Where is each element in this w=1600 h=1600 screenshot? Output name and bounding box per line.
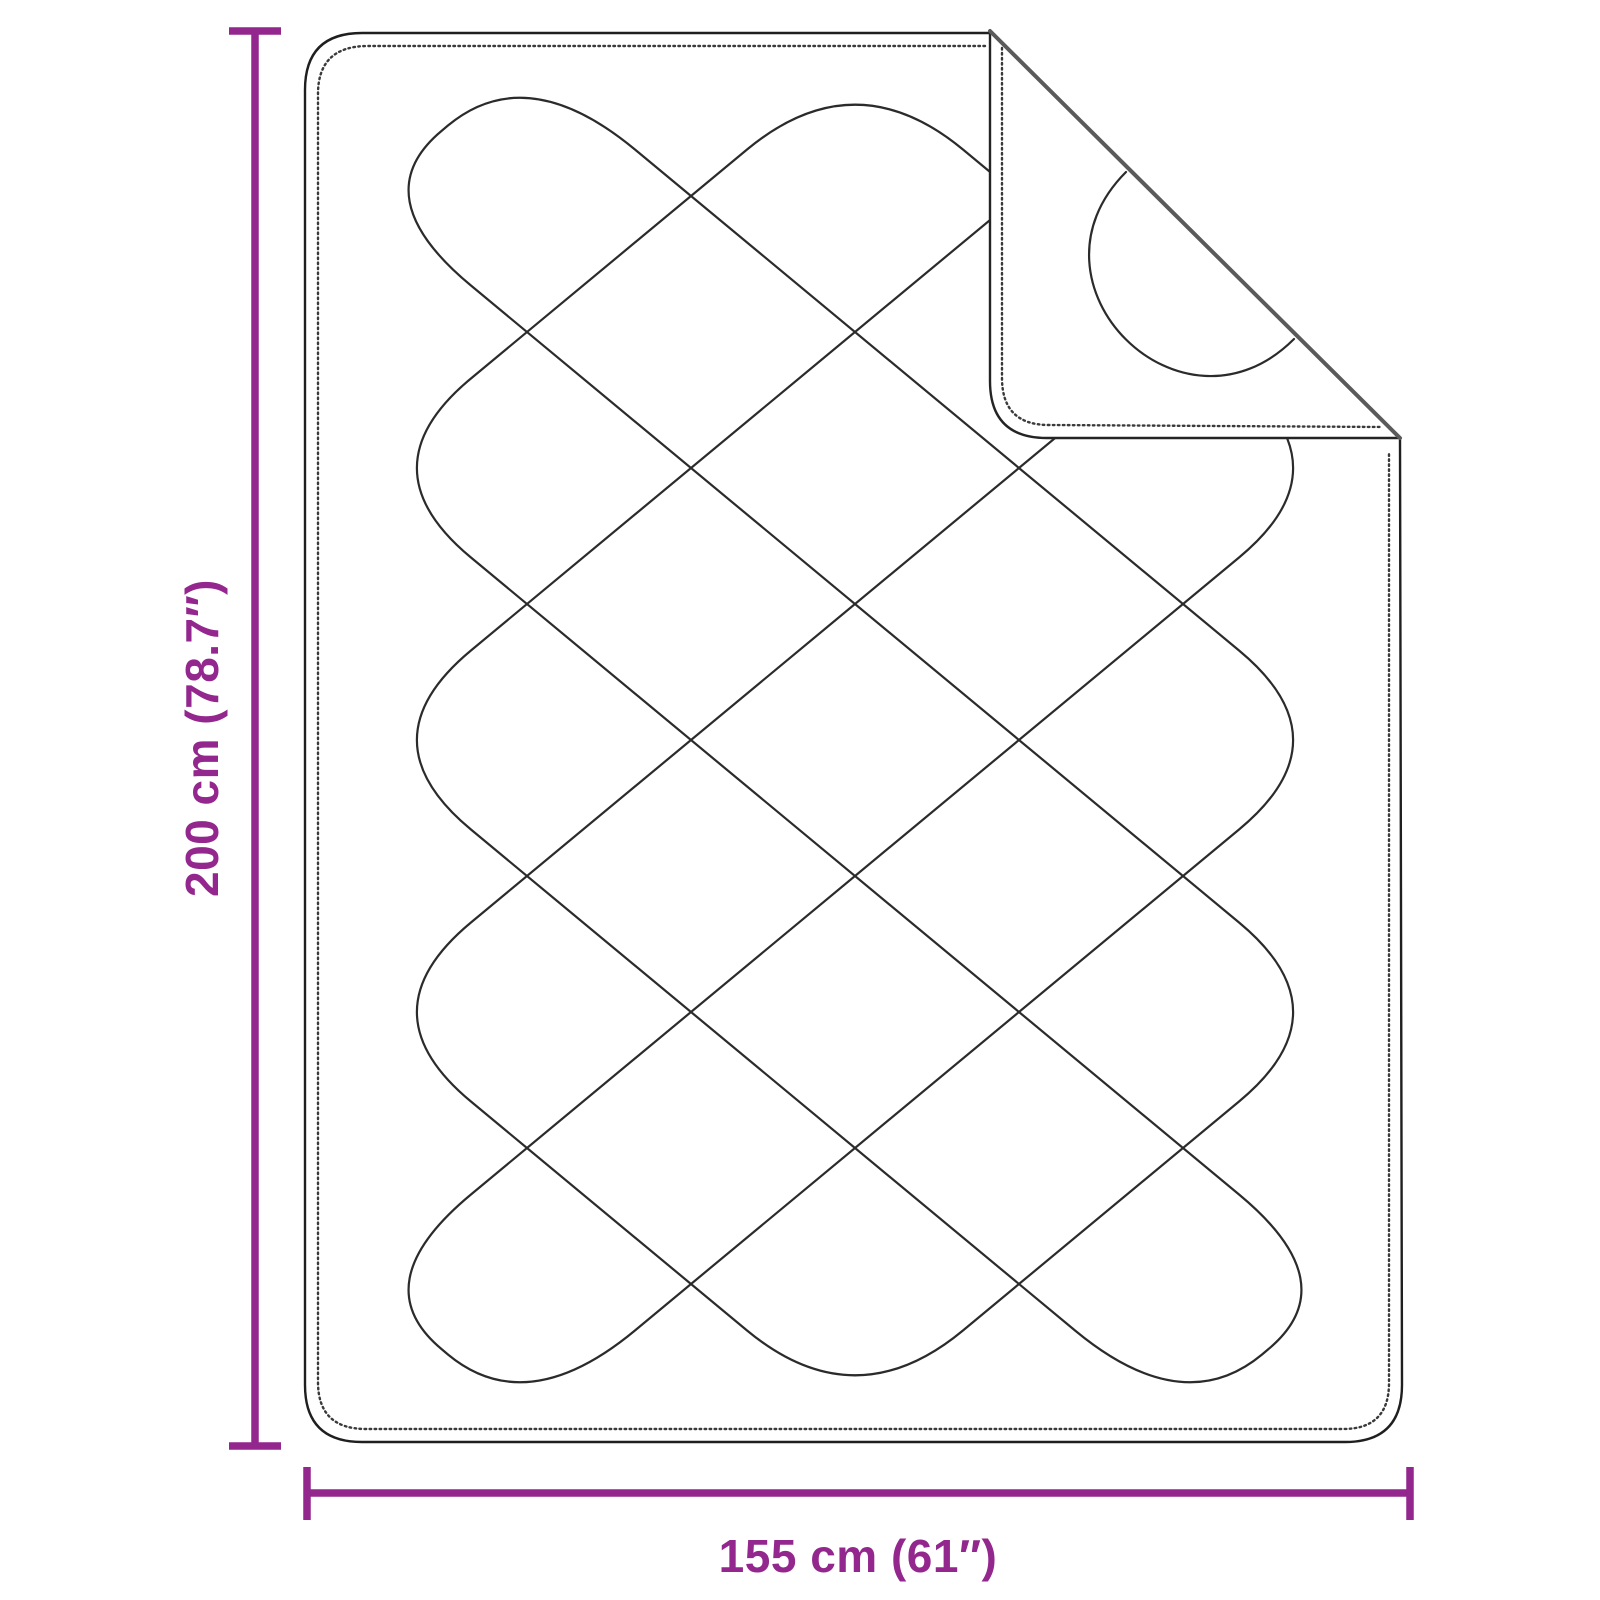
width-dimension-label: 155 cm (61″) [719,1530,998,1582]
product-dimension-diagram: 200 cm (78.7″) 155 cm (61″) [0,0,1600,1600]
folded-corner [990,31,1400,438]
blanket-outline [305,33,1402,1442]
width-dimension: 155 cm (61″) [307,1467,1410,1582]
height-dimension-label: 200 cm (78.7″) [176,579,228,897]
height-dimension: 200 cm (78.7″) [176,31,281,1446]
blanket-drawing [305,31,1402,1442]
diagram-canvas: 200 cm (78.7″) 155 cm (61″) [0,0,1600,1600]
